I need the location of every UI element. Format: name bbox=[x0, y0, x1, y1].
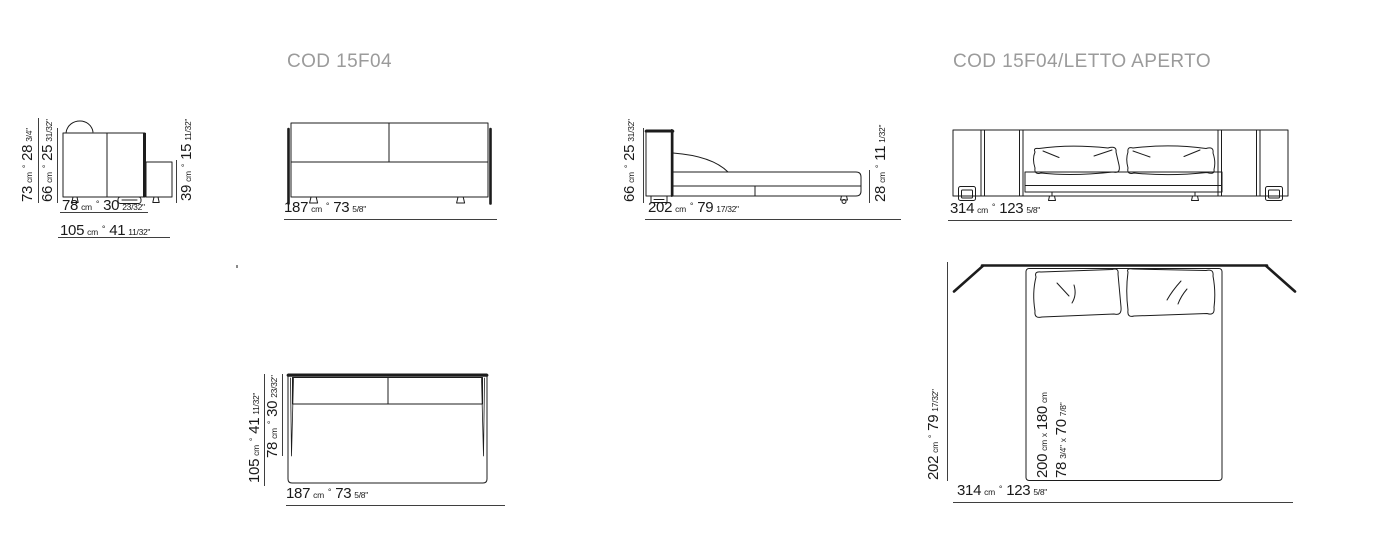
dim-inch-fraction: 11/32" bbox=[183, 119, 193, 141]
dim-inch-value: 15 bbox=[178, 144, 195, 160]
mattress-size-in: 783/4"x707/8" bbox=[1053, 392, 1072, 478]
dim-cm-value: 105 bbox=[60, 222, 84, 239]
dim-inch-fraction: 23/32" bbox=[122, 202, 145, 212]
dim-separator: ° bbox=[21, 165, 31, 168]
dim-line-top-width bbox=[286, 505, 505, 506]
bed-side-drawing bbox=[615, 110, 905, 210]
dim-bed-top-width: 314cm°1235/8" bbox=[957, 483, 1047, 500]
dim-inch-fraction: 17/32" bbox=[930, 389, 940, 412]
sofa-body bbox=[63, 133, 145, 197]
dim-cm-unit: cm bbox=[877, 172, 887, 183]
dim-cm-unit: cm bbox=[930, 442, 940, 453]
armrest-curve bbox=[673, 153, 728, 172]
dim-sofa-top-depth-total: 105cm°4111/32" bbox=[247, 393, 264, 483]
mattress-size-cm: 200cmx180cm bbox=[1034, 392, 1053, 478]
seat-extension bbox=[146, 162, 172, 197]
sofa-side-drawing bbox=[55, 112, 180, 208]
dim-bed-side-height-back: 66cm°2531/32" bbox=[622, 119, 639, 202]
dim-sofa-side-height-extension: 39cm°1511/32" bbox=[179, 119, 196, 201]
armrest-curve bbox=[66, 121, 93, 133]
dim-cm-value: 314 bbox=[957, 482, 981, 499]
dim-cm-unit: cm bbox=[977, 205, 988, 215]
foot-right bbox=[457, 197, 465, 203]
mattress-width-in: 70 bbox=[1053, 419, 1070, 435]
dim-inch-fraction: 3/4" bbox=[24, 128, 34, 142]
dim-sofa-front-width: 187cm°735/8" bbox=[284, 200, 366, 217]
dim-cm-value: 105 bbox=[246, 459, 263, 483]
fraction: 3/4" bbox=[1058, 445, 1068, 459]
dim-separator: ° bbox=[328, 487, 331, 497]
dim-inch-fraction: 11/32" bbox=[251, 393, 261, 415]
fraction: 7/8" bbox=[1058, 403, 1068, 417]
dim-bed-side-height-platform: 28cm°111/32" bbox=[873, 125, 890, 202]
dim-line-bed-width bbox=[948, 220, 1292, 221]
dim-inch-fraction: 5/8" bbox=[352, 204, 366, 214]
dim-inch-fraction: 1/32" bbox=[877, 125, 887, 143]
dim-bed-side-length: 202cm°7917/32" bbox=[648, 200, 739, 217]
dim-inch-value: 30 bbox=[264, 401, 281, 417]
dim-separator: ° bbox=[180, 164, 190, 167]
dim-separator: ° bbox=[248, 438, 258, 441]
dim-cm-value: 187 bbox=[286, 485, 310, 502]
dim-line-bed-top-depth bbox=[947, 262, 948, 481]
dim-cm-unit: cm bbox=[984, 487, 995, 497]
dim-cm-unit: cm bbox=[313, 490, 324, 500]
dim-separator: ° bbox=[41, 165, 51, 168]
dim-inch-value: 30 bbox=[103, 197, 119, 214]
dim-cm-unit: cm bbox=[269, 428, 279, 439]
pillow-right-crease bbox=[1184, 150, 1200, 157]
bed-front-drawing bbox=[945, 118, 1300, 210]
dim-inch-value: 41 bbox=[246, 418, 263, 434]
dim-cm-unit: cm bbox=[87, 227, 98, 237]
dim-cm-unit: cm bbox=[183, 171, 193, 182]
dim-cm-value: 66 bbox=[621, 186, 638, 202]
pillow-right bbox=[1127, 269, 1215, 317]
dim-line-height-extension bbox=[176, 160, 177, 203]
dim-cm-value: 202 bbox=[648, 199, 672, 216]
dim-separator: ° bbox=[874, 165, 884, 168]
dim-cm-value: 78 bbox=[264, 442, 281, 458]
dim-cm-value: 73 bbox=[19, 186, 36, 202]
dim-cm-value: 39 bbox=[178, 185, 195, 201]
dim-inch-value: 123 bbox=[999, 200, 1023, 217]
dim-inch-fraction: 31/32" bbox=[626, 119, 636, 142]
dim-cm-unit: cm bbox=[81, 202, 92, 212]
mattress-length-cm: 200 bbox=[1034, 454, 1051, 478]
dim-inch-value: 73 bbox=[335, 485, 351, 502]
dim-cm-unit: cm bbox=[44, 172, 54, 183]
dim-inch-fraction: 31/32" bbox=[44, 119, 54, 142]
side-panel-lines bbox=[981, 130, 1260, 196]
pillow-right bbox=[1127, 146, 1215, 175]
dim-sofa-top-depth-seat: 78cm°3023/32" bbox=[265, 375, 282, 458]
dim-inch-fraction: 5/8" bbox=[1033, 487, 1047, 497]
dim-cm-value: 187 bbox=[284, 199, 308, 216]
pillow-right-crease bbox=[1167, 281, 1181, 300]
dim-inch-value: 41 bbox=[109, 222, 125, 239]
dim-cm-value: 202 bbox=[925, 456, 942, 480]
dim-cm-value: 66 bbox=[39, 186, 56, 202]
pillow-left bbox=[1034, 269, 1121, 317]
dim-line-bed-height-back bbox=[643, 128, 644, 203]
dim-line-height-seatback bbox=[57, 128, 58, 203]
dim-inch-value: 25 bbox=[621, 145, 638, 161]
artifact-dot bbox=[236, 265, 238, 268]
dim-separator: ° bbox=[102, 224, 105, 234]
dim-cm-value: 78 bbox=[62, 197, 78, 214]
dim-inch-value: 28 bbox=[19, 145, 36, 161]
dim-cm-unit: cm bbox=[251, 445, 261, 456]
dim-cm-unit: cm bbox=[675, 204, 686, 214]
dim-inch-value: 73 bbox=[333, 199, 349, 216]
dim-sofa-side-height-seatback: 66cm°2531/32" bbox=[40, 119, 57, 202]
title-sofa-closed: COD 15F04 bbox=[287, 51, 392, 73]
dim-cm-value: 314 bbox=[950, 200, 974, 217]
dim-separator: ° bbox=[992, 202, 995, 212]
dim-inch-value: 11 bbox=[872, 146, 889, 161]
dim-inch-fraction: 5/8" bbox=[1026, 205, 1040, 215]
pillow-left-crease bbox=[1094, 150, 1112, 156]
pillow-right-crease bbox=[1178, 289, 1187, 304]
mattress bbox=[1025, 172, 1222, 192]
foot-right bbox=[153, 197, 159, 203]
dim-cm-unit: cm bbox=[311, 204, 322, 214]
title-bed-open: COD 15F04/LETTO APERTO bbox=[953, 51, 1211, 73]
pillow-left-crease bbox=[1057, 283, 1069, 296]
pillow-left-crease bbox=[1072, 285, 1075, 303]
corner-foot-right-inner bbox=[1269, 190, 1280, 198]
dim-inch-fraction: 5/8" bbox=[354, 490, 368, 500]
pillow-left-crease bbox=[1043, 151, 1059, 158]
mattress-width-cm: 180 bbox=[1034, 406, 1051, 430]
dim-line-bed-top-width bbox=[953, 502, 1293, 503]
dim-separator: ° bbox=[96, 199, 99, 209]
dim-inch-value: 123 bbox=[1006, 482, 1030, 499]
bed-frame bbox=[953, 130, 1288, 196]
mattress-length-in: 78 bbox=[1053, 462, 1070, 478]
headboard bbox=[646, 130, 673, 196]
dim-cm-value: 28 bbox=[872, 186, 889, 202]
dim-bed-top-depth: 202cm°7917/32" bbox=[926, 389, 943, 480]
dim-separator: ° bbox=[266, 421, 276, 424]
dim-cm-unit: cm bbox=[24, 172, 34, 183]
dim-line-sofa-width bbox=[284, 219, 497, 220]
unit-cm: cm bbox=[1039, 440, 1049, 451]
dim-cm-unit: cm bbox=[626, 172, 636, 183]
dim-line-bed-length bbox=[645, 219, 901, 220]
dim-separator: ° bbox=[326, 201, 329, 211]
dim-sofa-side-height-total: 73cm°283/4" bbox=[20, 128, 37, 202]
dim-inch-fraction: 11/32" bbox=[128, 227, 150, 237]
sofa-front-drawing bbox=[283, 118, 500, 210]
pillow-right-crease bbox=[1133, 151, 1150, 157]
dim-separator: ° bbox=[623, 165, 633, 168]
open-arm-left bbox=[954, 266, 983, 292]
dim-sofa-side-depth-total: 105cm°4111/32" bbox=[60, 223, 150, 240]
times-sign: x bbox=[1058, 438, 1068, 442]
dim-line-bed-height-platform bbox=[869, 170, 870, 203]
dim-separator: ° bbox=[927, 435, 937, 438]
product-spec-sheet: COD 15F04 COD 15F04/LETTO APERTO 73cm°28… bbox=[0, 0, 1381, 557]
unit-cm: cm bbox=[1039, 392, 1049, 403]
dim-inch-value: 79 bbox=[925, 415, 942, 431]
dim-sofa-top-width: 187cm°735/8" bbox=[286, 486, 368, 503]
corner-foot-left-inner bbox=[962, 190, 973, 198]
dim-inch-fraction: 17/32" bbox=[716, 204, 739, 214]
dim-separator: ° bbox=[690, 201, 693, 211]
open-arm-right bbox=[1266, 266, 1295, 292]
pillow-left bbox=[1034, 146, 1120, 174]
dim-mattress-size: 200cmx180cm 783/4"x707/8" bbox=[1034, 392, 1072, 478]
dim-inch-value: 79 bbox=[697, 199, 713, 216]
dim-line-top-depth-seat bbox=[282, 374, 283, 456]
dim-sofa-side-depth-seat: 78cm°3023/32" bbox=[62, 198, 145, 215]
sofa-top-drawing bbox=[245, 368, 510, 513]
dim-inch-fraction: 23/32" bbox=[269, 375, 279, 398]
dim-inch-value: 25 bbox=[39, 145, 56, 161]
bed-top-drawing bbox=[895, 252, 1335, 512]
dim-bed-front-width: 314cm°1235/8" bbox=[950, 201, 1040, 218]
dim-separator: ° bbox=[999, 484, 1002, 494]
times-sign: x bbox=[1039, 433, 1049, 437]
bed-platform bbox=[673, 172, 861, 196]
